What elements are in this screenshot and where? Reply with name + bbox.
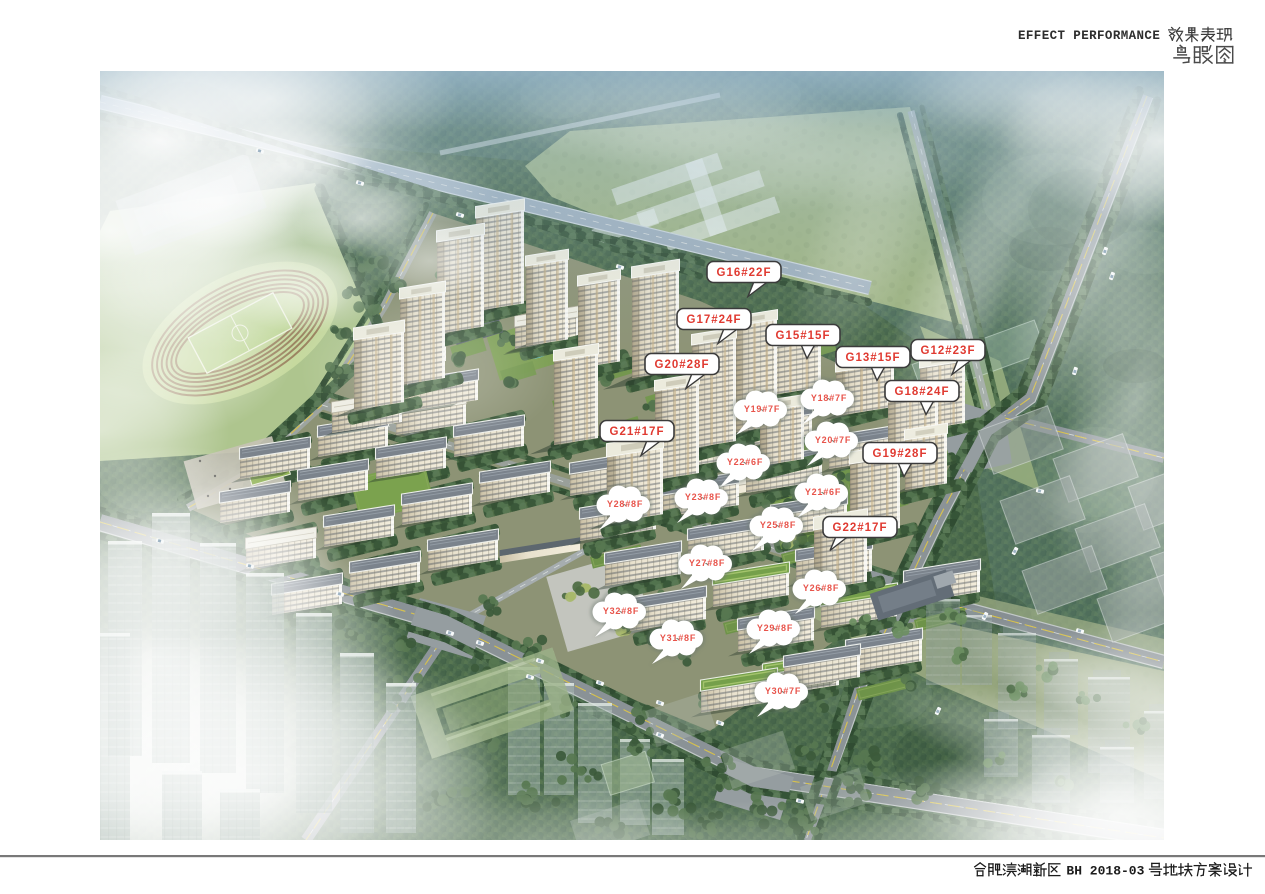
svg-text:G22#17F: G22#17F [833,522,888,534]
svg-text:Y27#8F: Y27#8F [689,558,725,568]
svg-text:Y25#8F: Y25#8F [760,520,796,530]
svg-text:Y30#7F: Y30#7F [765,686,801,696]
svg-text:Y32#8F: Y32#8F [603,606,639,616]
svg-text:G17#24F: G17#24F [687,314,742,326]
svg-text:G21#17F: G21#17F [610,426,665,438]
svg-text:G20#28F: G20#28F [655,359,710,371]
svg-text:G13#15F: G13#15F [846,352,901,364]
svg-text:G16#22F: G16#22F [717,267,772,279]
svg-text:Y26#8F: Y26#8F [803,583,839,593]
svg-text:G18#24F: G18#24F [895,386,950,398]
svg-text:EFFECT PERFORMANCE: EFFECT PERFORMANCE [1018,29,1160,43]
svg-text:Y18#7F: Y18#7F [811,393,847,403]
svg-text:BH 2018-03: BH 2018-03 [1066,864,1144,879]
svg-text:Y19#7F: Y19#7F [744,404,780,414]
svg-text:Y28#8F: Y28#8F [607,499,643,509]
svg-text:G15#15F: G15#15F [776,330,831,342]
svg-text:Y21#6F: Y21#6F [805,487,841,497]
svg-text:Y23#8F: Y23#8F [685,492,721,502]
svg-text:Y31#8F: Y31#8F [660,633,696,643]
svg-text:Y29#8F: Y29#8F [757,623,793,633]
svg-text:Y20#7F: Y20#7F [815,435,851,445]
svg-text:Y22#6F: Y22#6F [727,457,763,467]
svg-text:G12#23F: G12#23F [921,345,976,357]
svg-text:G19#28F: G19#28F [873,448,928,460]
